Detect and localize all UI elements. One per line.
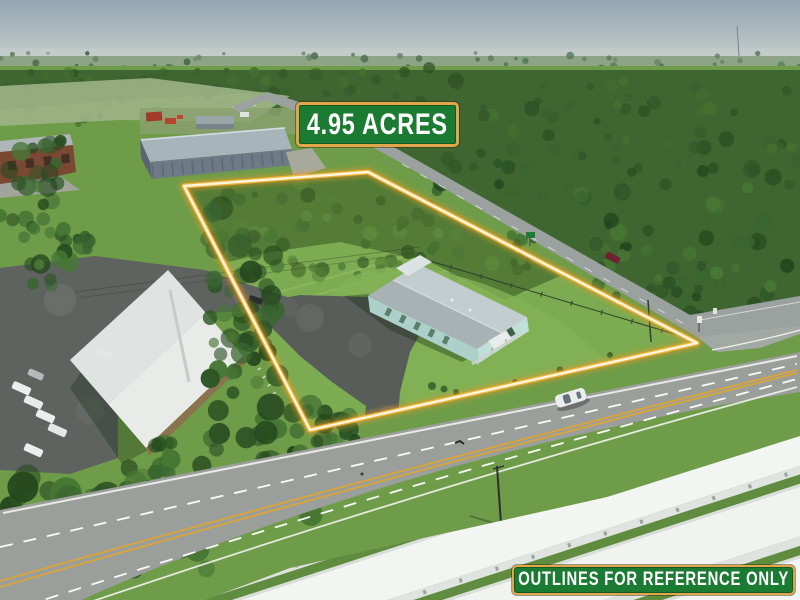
road-sign bbox=[697, 316, 702, 323]
red-shed bbox=[146, 111, 163, 121]
listing-photo-stage: 4.95 ACRES OUTLINES FOR REFERENCE ONLY bbox=[0, 0, 800, 600]
red-truck bbox=[177, 115, 183, 119]
acreage-badge-label: 4.95 ACRES bbox=[307, 108, 448, 142]
disclaimer-badge-label: OUTLINES FOR REFERENCE ONLY bbox=[518, 569, 789, 591]
aerial-photo bbox=[0, 0, 800, 600]
acreage-badge: 4.95 ACRES bbox=[296, 102, 459, 147]
green-street-sign bbox=[526, 232, 535, 238]
disclaimer-badge: OUTLINES FOR REFERENCE ONLY bbox=[512, 565, 795, 595]
road-sign bbox=[713, 308, 717, 314]
red-shed bbox=[165, 118, 176, 124]
distant-building-roof bbox=[196, 116, 234, 124]
